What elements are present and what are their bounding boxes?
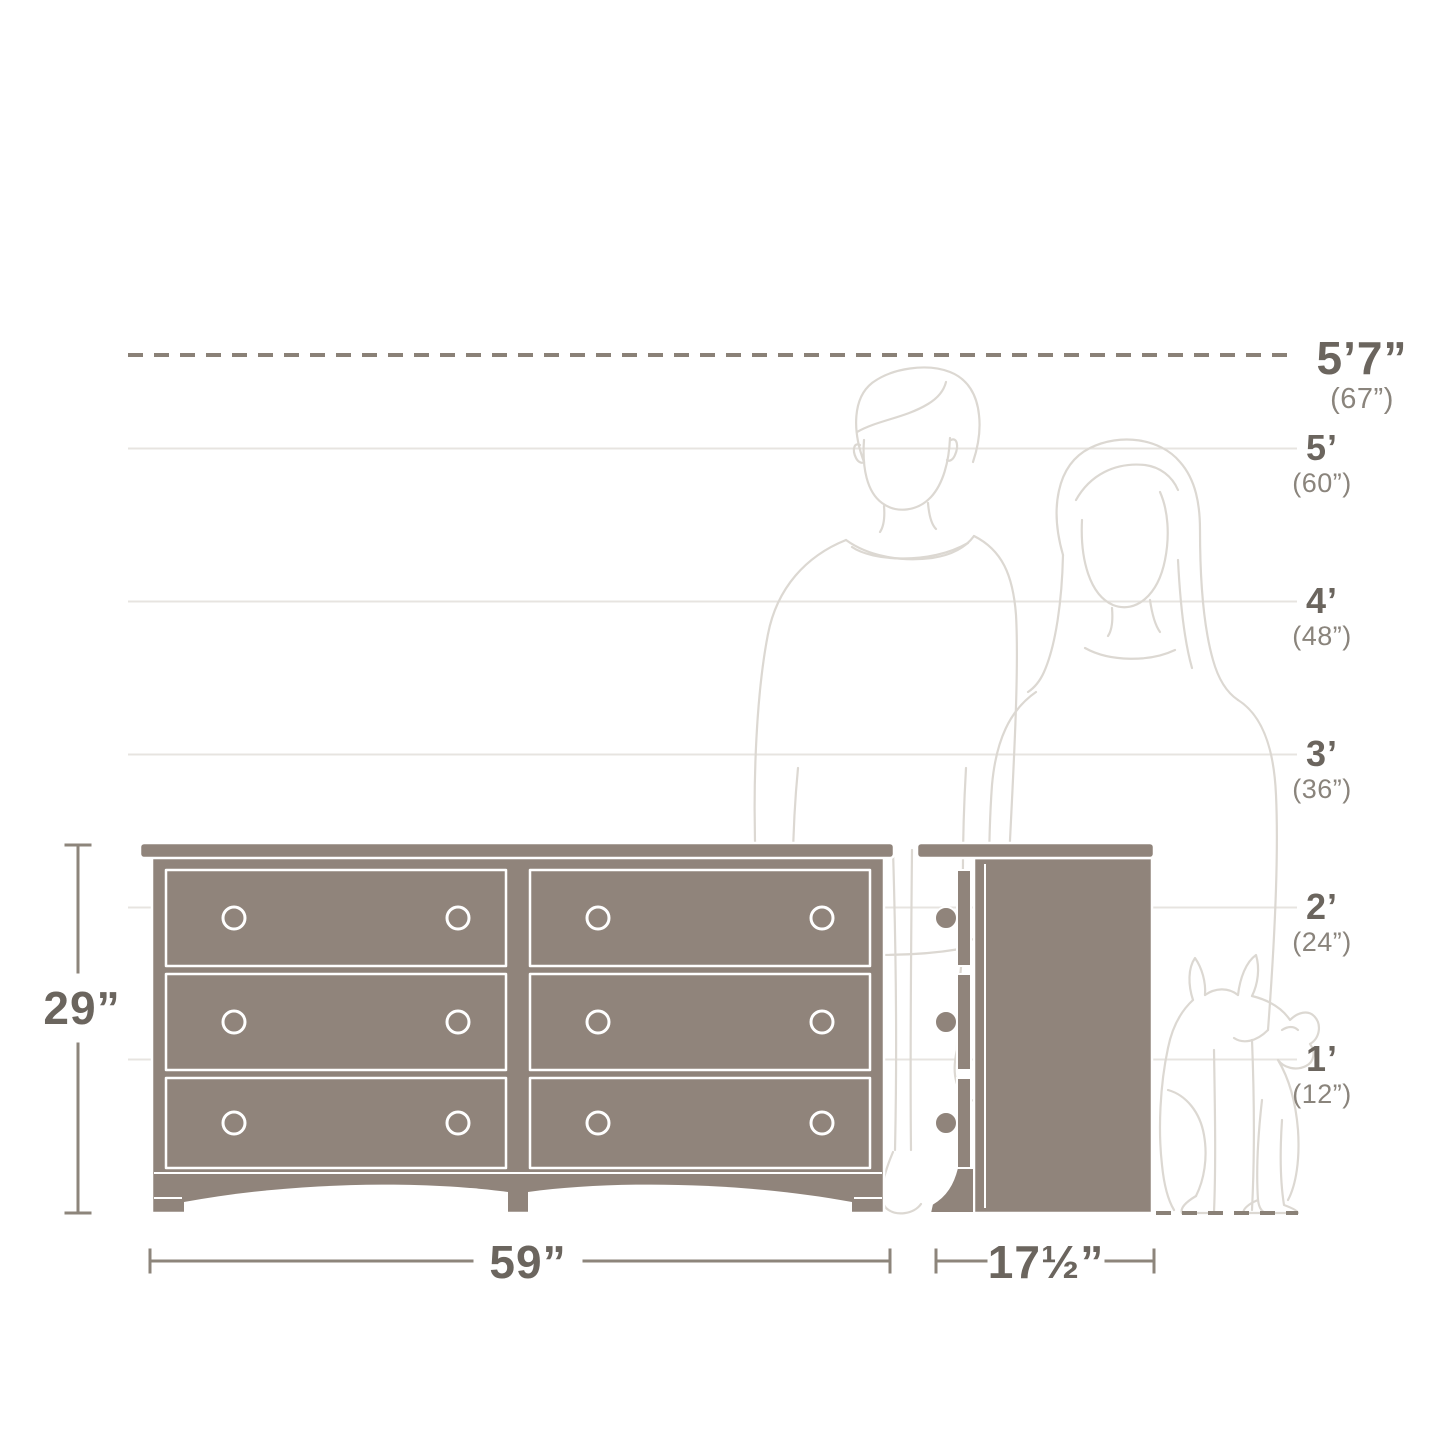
height-mark-secondary: (60”) — [1292, 467, 1352, 499]
width-dimension-label: 59” — [489, 1235, 566, 1289]
height-mark-4ft: 4’ (48”) — [1292, 582, 1352, 652]
front-dresser — [140, 843, 894, 1214]
height-mark-primary: 1’ — [1292, 1040, 1352, 1078]
depth-dimension-label: 17½” — [988, 1235, 1105, 1289]
height-mark-5ft7: 5’7” (67”) — [1317, 334, 1408, 416]
height-mark-5ft: 5’ (60”) — [1292, 429, 1352, 499]
diagram-canvas — [0, 0, 1445, 1445]
height-mark-secondary: (36”) — [1292, 773, 1352, 805]
side-drawer-knobs — [935, 907, 957, 1134]
height-mark-2ft: 2’ (24”) — [1292, 888, 1352, 958]
height-mark-primary: 5’7” — [1317, 334, 1408, 382]
height-mark-secondary: (24”) — [1292, 926, 1352, 958]
height-dimension-label: 29” — [43, 981, 120, 1035]
height-mark-1ft: 1’ (12”) — [1292, 1040, 1352, 1110]
height-mark-secondary: (12”) — [1292, 1078, 1352, 1110]
height-mark-secondary: (48”) — [1292, 620, 1352, 652]
height-mark-secondary: (67”) — [1317, 382, 1408, 416]
height-mark-primary: 2’ — [1292, 888, 1352, 926]
height-mark-3ft: 3’ (36”) — [1292, 735, 1352, 805]
height-mark-primary: 5’ — [1292, 429, 1352, 467]
side-dresser — [917, 843, 1154, 1213]
height-mark-primary: 4’ — [1292, 582, 1352, 620]
dimension-diagram: 5’7” (67”) 5’ (60”) 4’ (48”) 3’ (36”) 2’… — [0, 0, 1445, 1445]
height-mark-primary: 3’ — [1292, 735, 1352, 773]
